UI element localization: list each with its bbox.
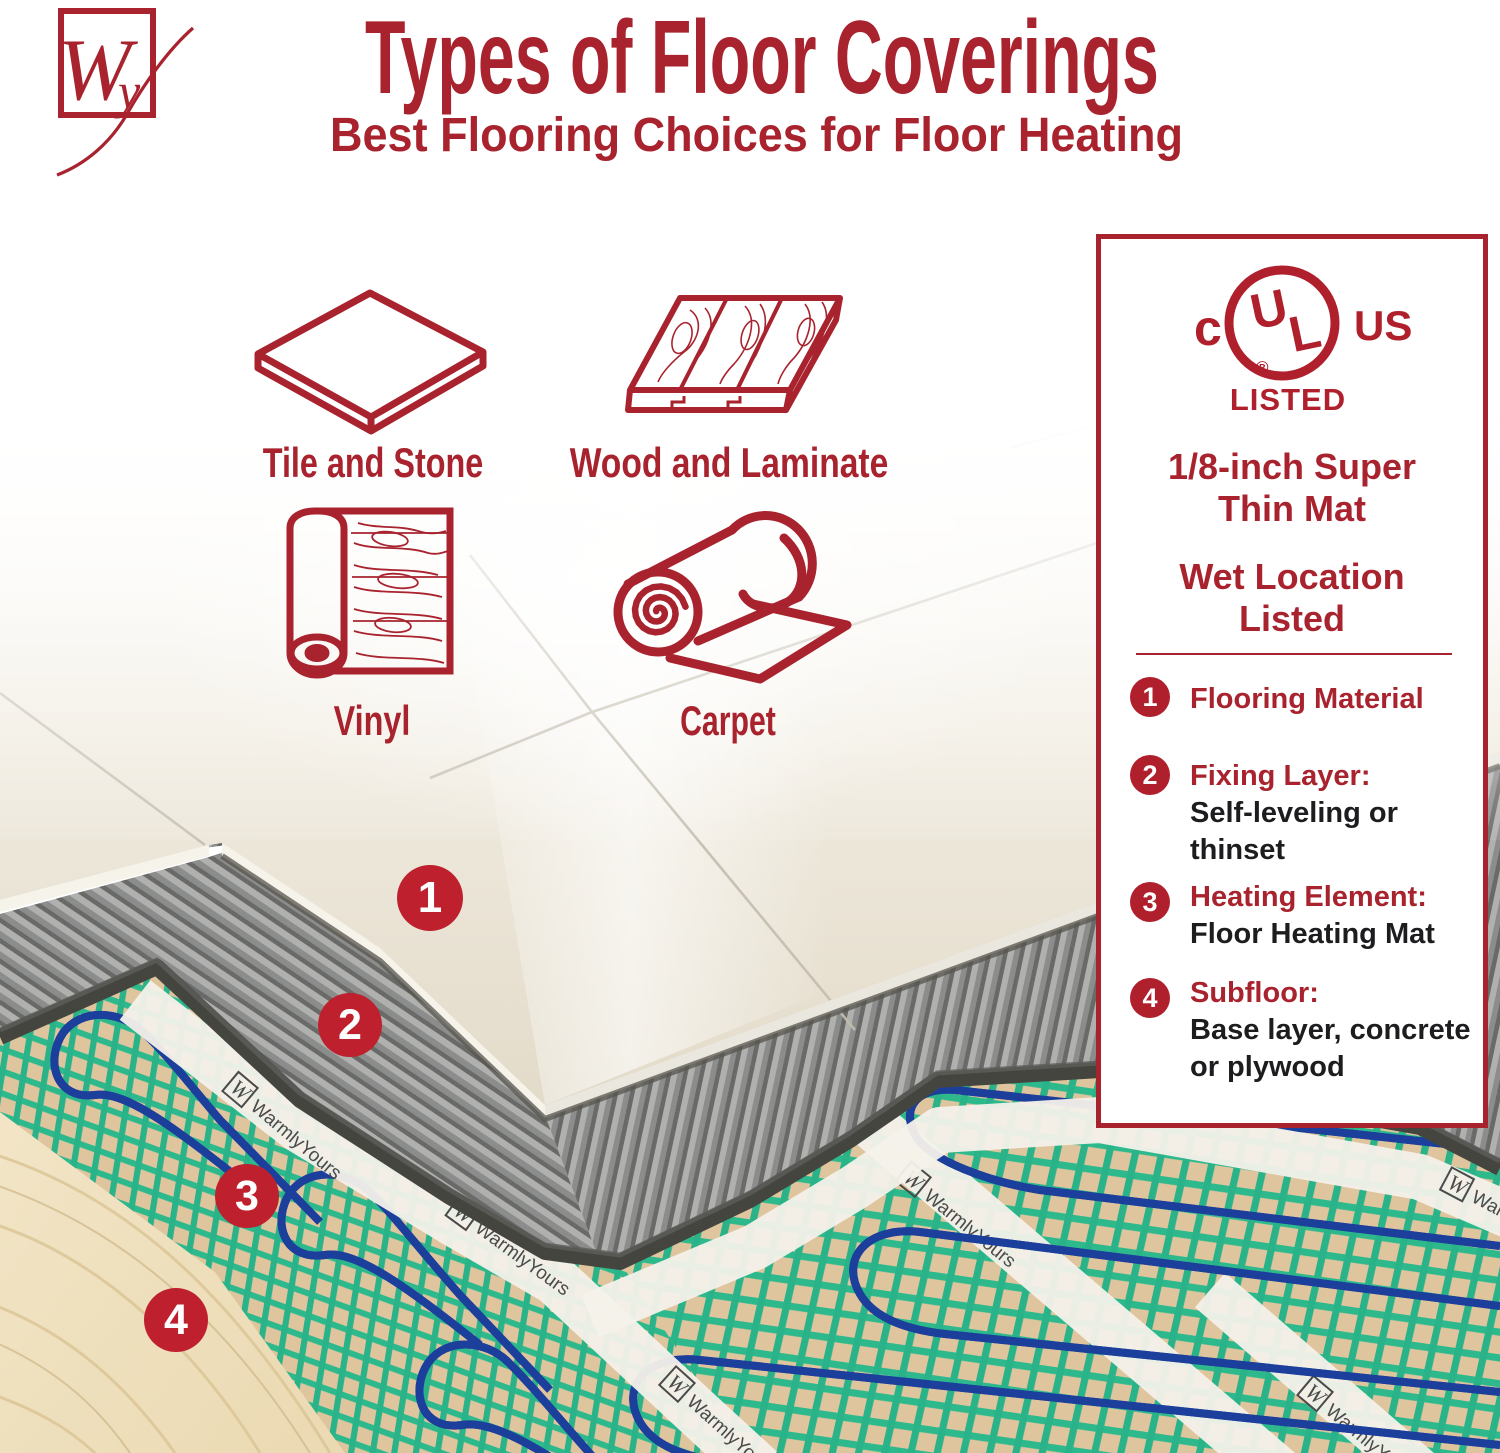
svg-text:L: L <box>1284 302 1326 363</box>
svg-text:US: US <box>1354 302 1412 349</box>
svg-text:®: ® <box>1256 358 1269 377</box>
svg-text:y: y <box>113 63 141 119</box>
svg-text:c: c <box>1194 300 1222 356</box>
svg-text:LISTED: LISTED <box>1230 382 1346 417</box>
